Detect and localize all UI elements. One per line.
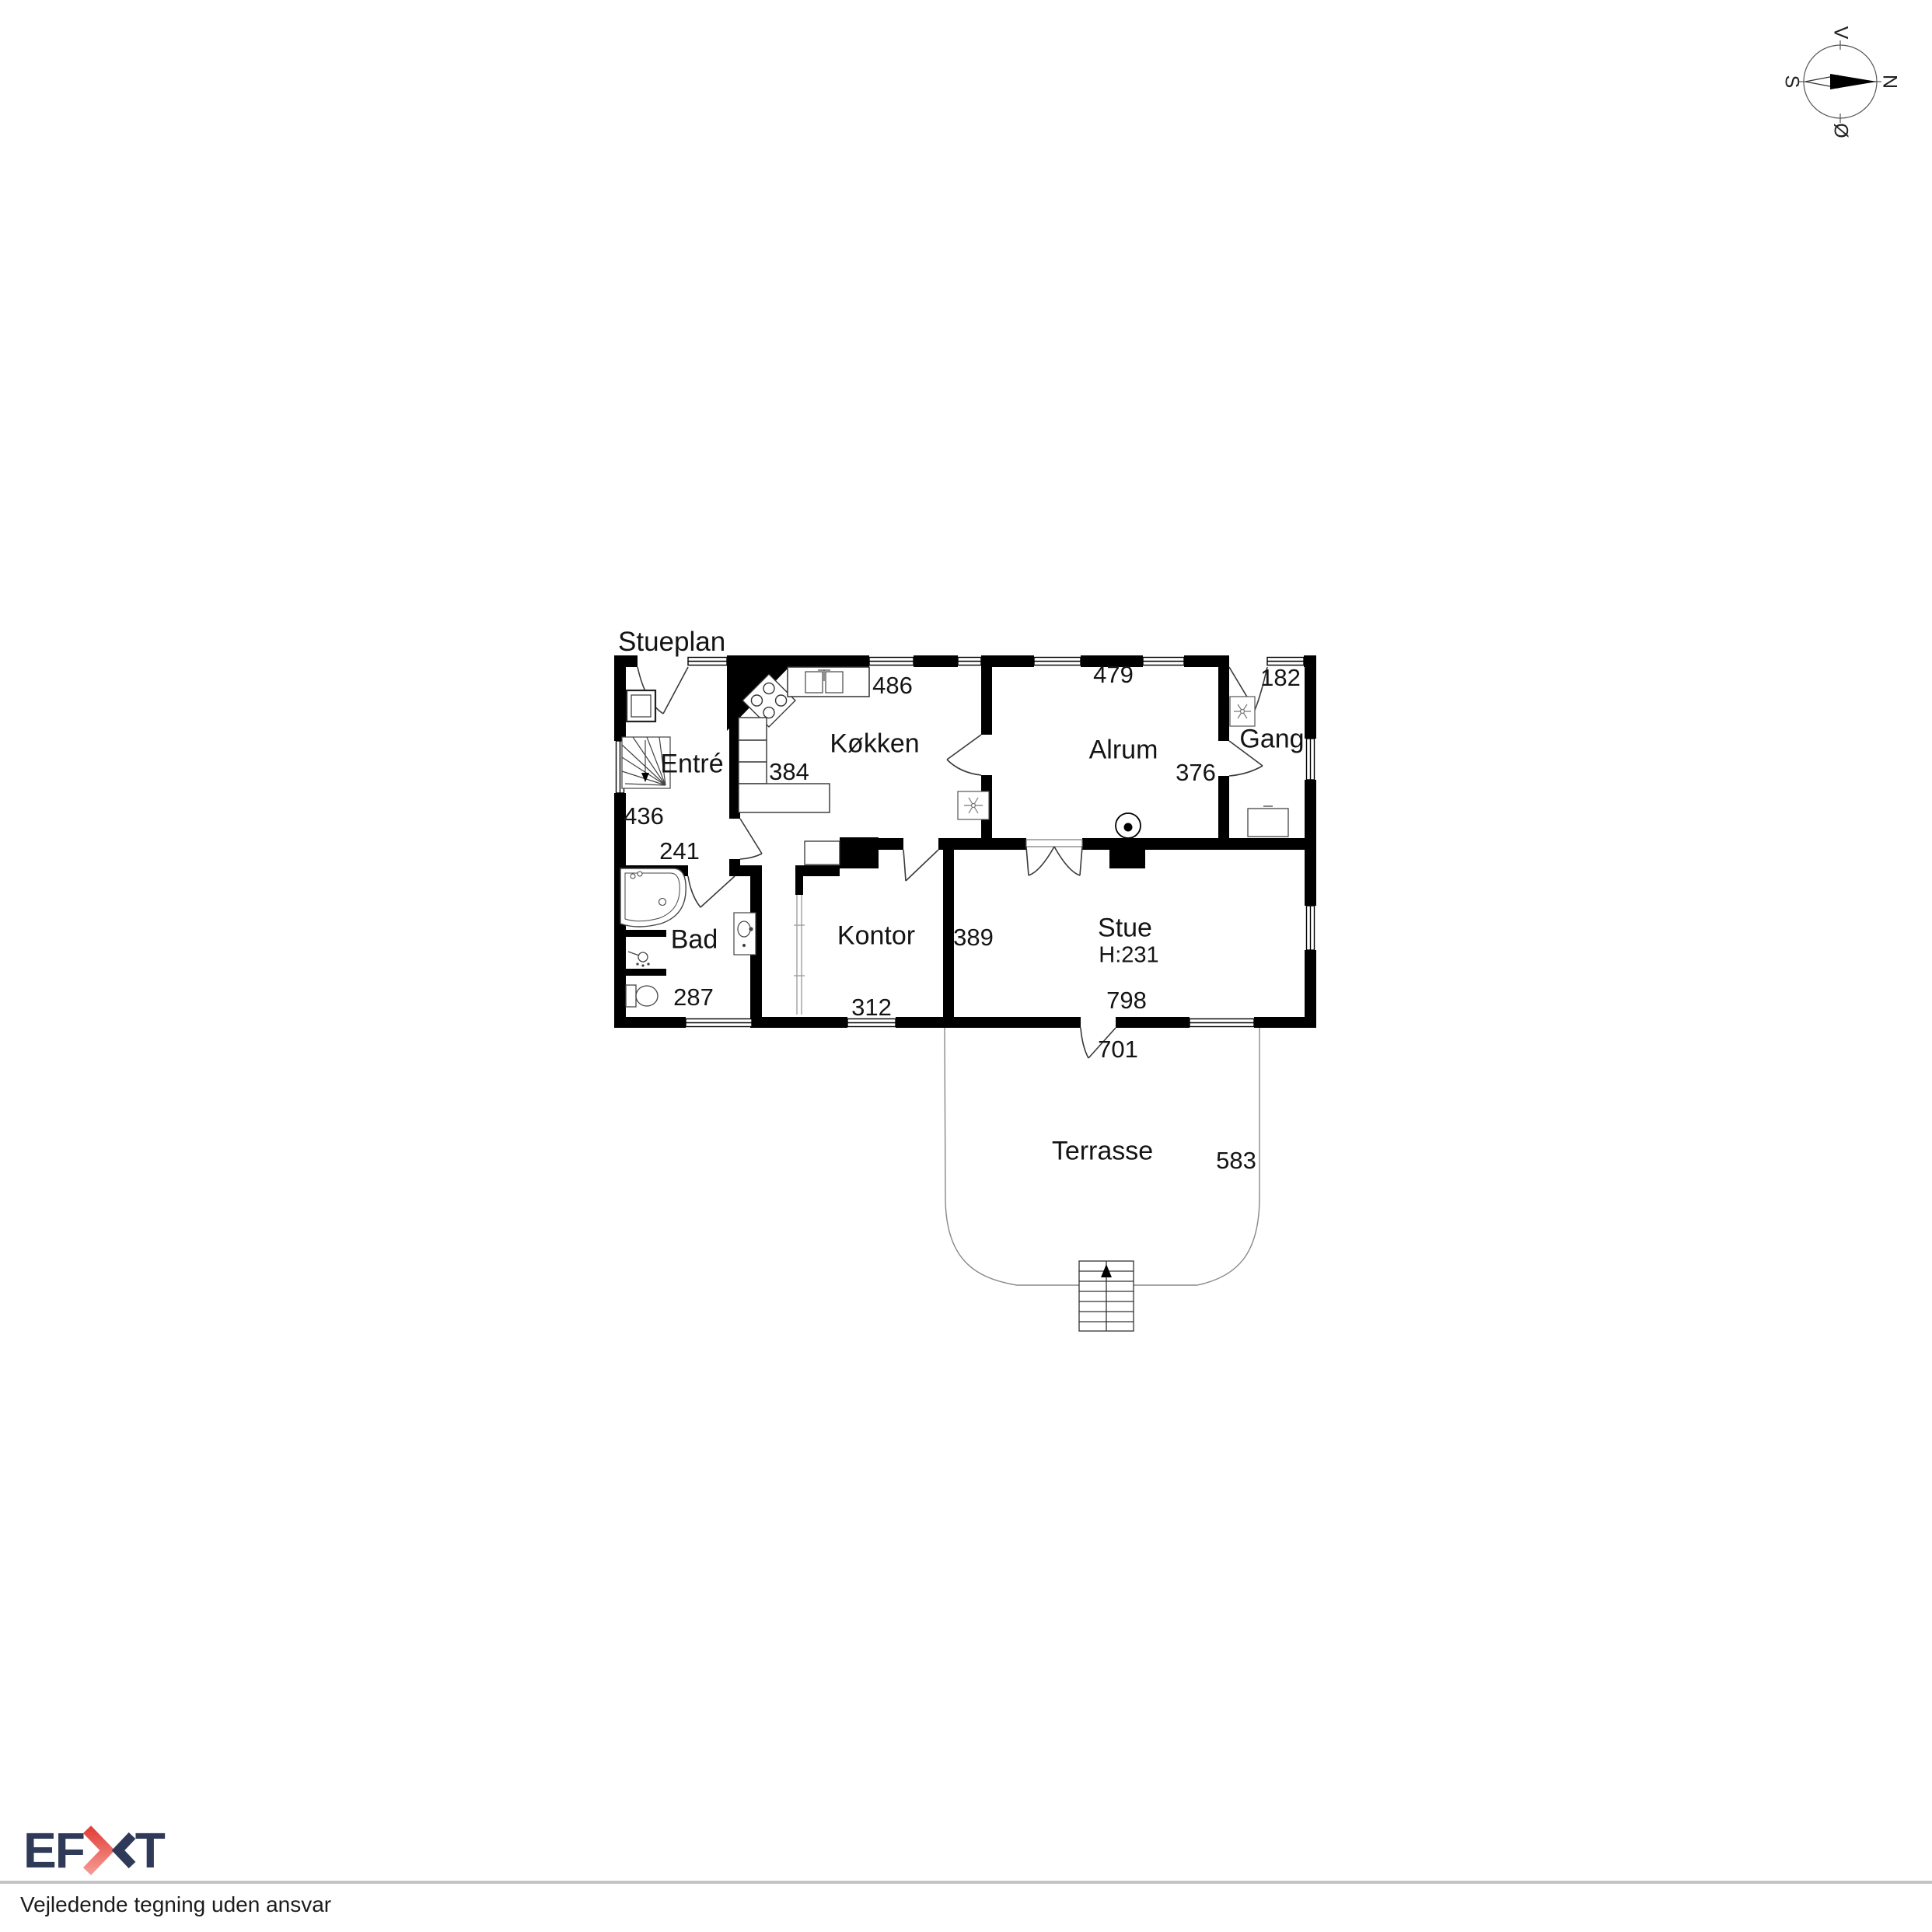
compass-label-east: Ø [1829, 123, 1852, 138]
toilet-icon [626, 985, 658, 1007]
floor-plan-drawing [0, 0, 1932, 1932]
cabinet-icon [627, 690, 655, 721]
double-door-alrum-stue [1026, 840, 1082, 875]
dim-terrasse-door: 701 [1098, 1036, 1138, 1064]
page-title: Stueplan [618, 627, 725, 658]
door-koekken-alrum [947, 735, 981, 775]
room-label-alrum: Alrum [1089, 735, 1158, 766]
door-koekken-kontor [903, 850, 938, 881]
logo-chevron-icon [81, 1825, 138, 1875]
disclaimer-text: Vejledende tegning uden ansvar [20, 1892, 331, 1917]
door-entre-koekken [740, 819, 762, 859]
cabinet-icon [1248, 806, 1288, 837]
dim-koekken-depth: 384 [769, 758, 809, 786]
room-label-koekken: Køkken [830, 729, 919, 760]
logo-text-left: EF [23, 1825, 84, 1875]
window [869, 658, 914, 666]
sink-icon [734, 913, 756, 955]
efkt-logo: EF T [23, 1825, 164, 1875]
room-label-terrasse: Terrasse [1052, 1137, 1153, 1167]
dim-bad-width: 287 [673, 983, 714, 1011]
dim-kontor-width: 312 [851, 994, 892, 1022]
compass-label-west: V [1829, 26, 1852, 40]
wood-stove-icon [1116, 813, 1141, 838]
floorplan-page: Stueplan Entré Køkken Alrum Gang Bad Kon… [0, 0, 1932, 1932]
dim-gang-width: 182 [1260, 664, 1301, 692]
ventilation-icon [958, 791, 989, 819]
room-label-gang: Gang [1239, 725, 1304, 755]
window [1190, 1019, 1254, 1027]
room-label-stue: Stue [1098, 914, 1152, 944]
window [1143, 658, 1184, 666]
dim-koekken-width: 486 [872, 672, 913, 700]
window [688, 658, 727, 666]
window [1307, 739, 1315, 780]
terrace-stairs-icon [1079, 1261, 1134, 1331]
kitchen-sink-icon [788, 667, 869, 697]
dim-entre-width: 241 [659, 837, 700, 865]
window [1034, 658, 1081, 666]
dim-alrum-width: 479 [1093, 661, 1134, 689]
dim-kontor-depth: 389 [953, 924, 994, 952]
ceiling-height-label: H:231 [1099, 943, 1158, 969]
compass-icon [1799, 40, 1881, 123]
window [1307, 906, 1315, 950]
cabinet-icon [805, 841, 840, 865]
window [958, 658, 981, 666]
dim-alrum-depth: 376 [1176, 759, 1216, 787]
dim-terrasse-depth: 583 [1216, 1147, 1256, 1175]
logo-text-right: T [135, 1825, 164, 1875]
shower-icon [628, 952, 649, 966]
dim-entre-depth: 436 [624, 802, 664, 830]
window [686, 1019, 752, 1027]
bathtub-icon [620, 868, 686, 927]
room-label-kontor: Kontor [837, 921, 915, 952]
dim-stue-width: 798 [1106, 987, 1147, 1015]
ventilation-icon [1230, 697, 1255, 726]
walls [614, 655, 1316, 1028]
room-label-bad: Bad [671, 925, 718, 956]
sliding-door [794, 895, 805, 1015]
door-entre-bad [688, 876, 735, 907]
room-label-entre: Entré [660, 749, 723, 780]
footer-divider [0, 1881, 1932, 1884]
compass-label-north: N [1878, 75, 1901, 89]
compass-label-south: S [1780, 75, 1803, 89]
